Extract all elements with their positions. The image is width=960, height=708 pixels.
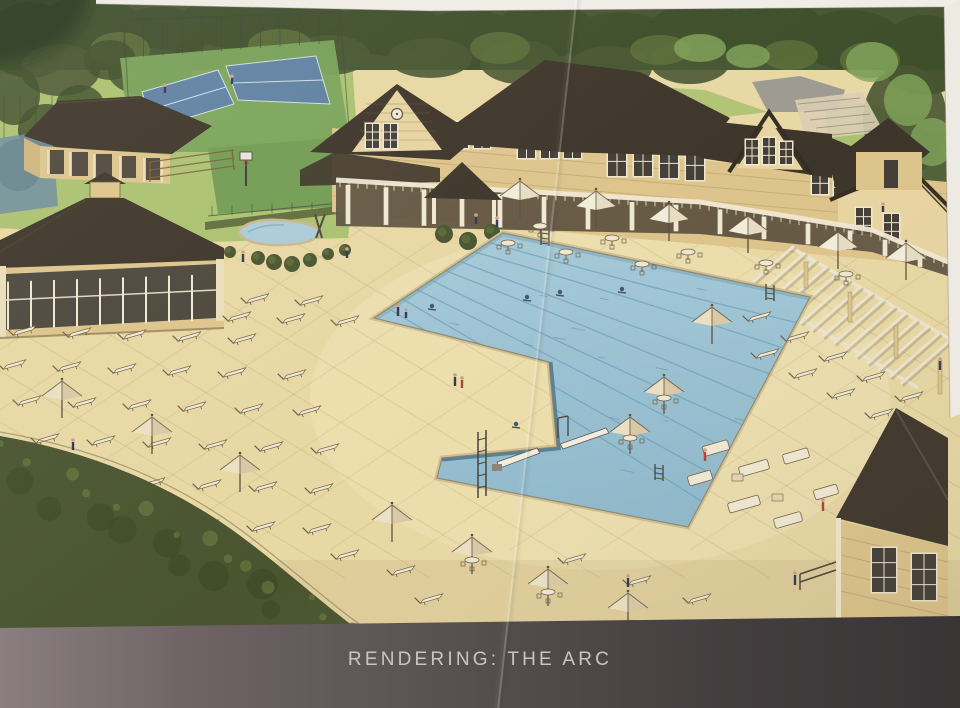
layer-fx [0,0,960,708]
photo-of-printed-rendering: RENDERING: THE ARC [0,0,960,708]
caption-text: RENDERING: THE ARC [348,649,612,675]
rendering-illustration [0,0,960,708]
caption-banner: RENDERING: THE ARC [0,616,960,708]
